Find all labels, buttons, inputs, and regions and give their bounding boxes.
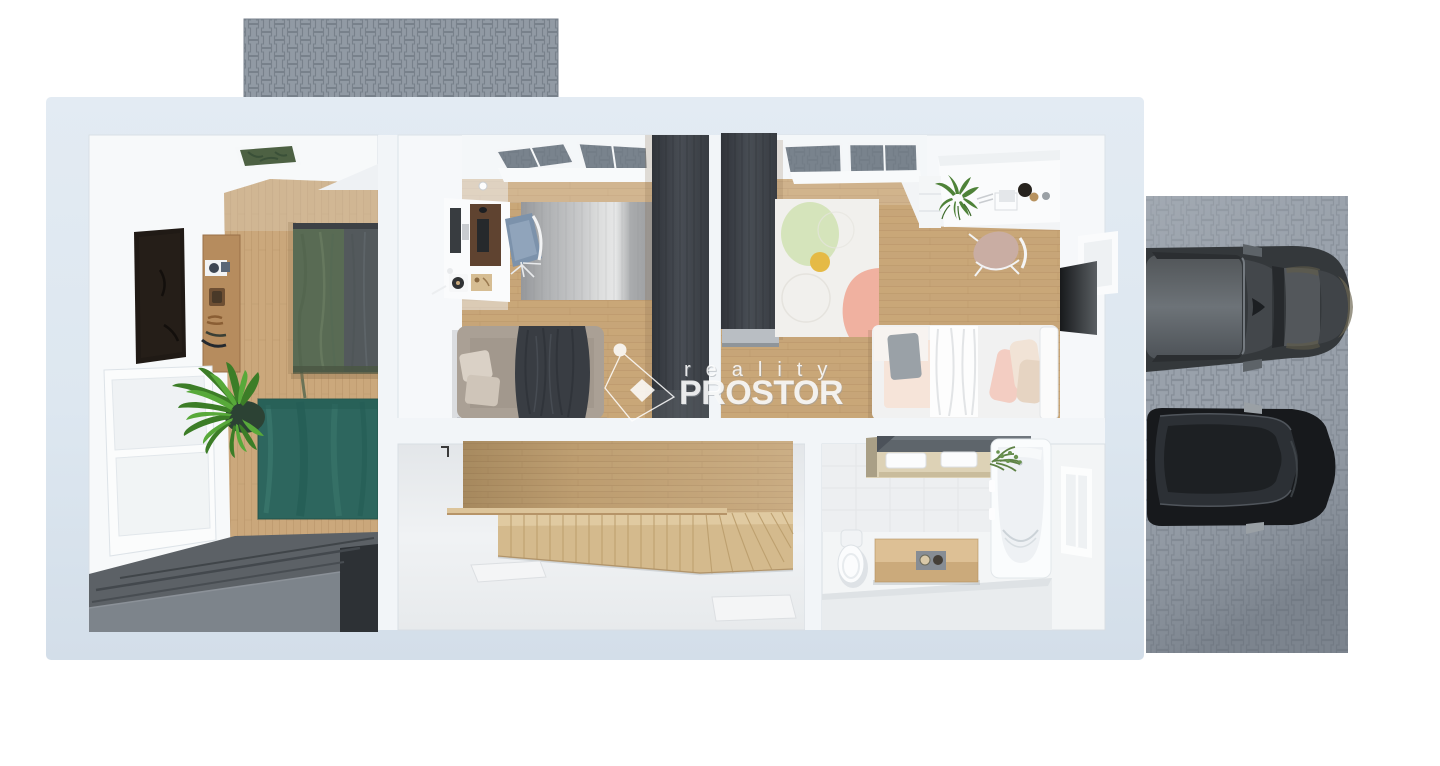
svg-text:PROSTOR: PROSTOR: [679, 374, 843, 412]
